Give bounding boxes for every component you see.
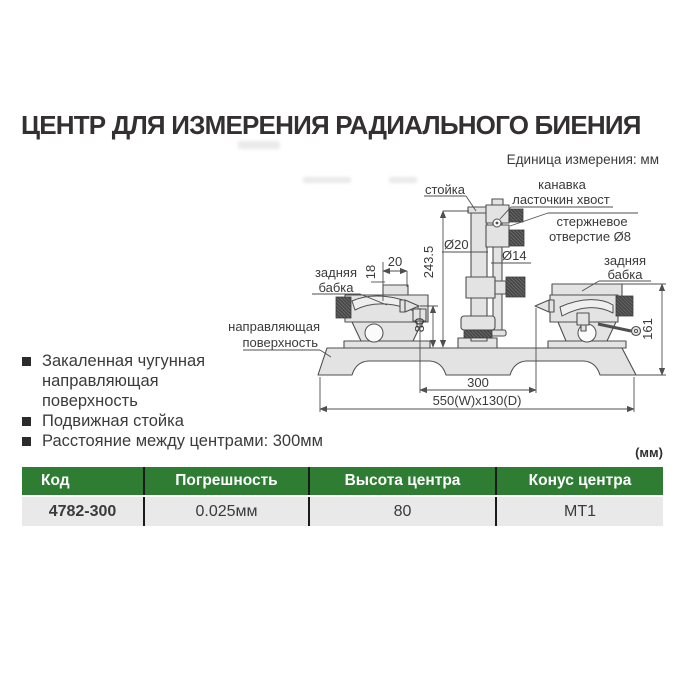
tailstock-left-label-2: бабка bbox=[318, 280, 354, 295]
dim-label: 300 bbox=[467, 375, 489, 390]
measuring-stand bbox=[461, 199, 525, 341]
table-header-row: Код Погрешность Высота центра Конус цент… bbox=[22, 467, 663, 497]
feature-line: Подвижная стойка bbox=[42, 411, 184, 431]
dim-label: 80 bbox=[412, 318, 427, 332]
knurled-knob-icon bbox=[509, 230, 524, 246]
knurled-knob-icon bbox=[616, 296, 633, 316]
callout-rod-hole: стержневое отверстие Ø8 bbox=[510, 213, 638, 244]
cell-center-height: 80 bbox=[308, 497, 495, 526]
guide-label-1: направляющая bbox=[228, 319, 320, 334]
cell-code: 4782-300 bbox=[22, 497, 143, 526]
dim-label: 243.5 bbox=[421, 246, 436, 279]
tailstock-right-label-2: бабка bbox=[607, 267, 643, 282]
center-cone-right bbox=[535, 300, 549, 312]
stand-label: стойка bbox=[425, 182, 466, 197]
spec-table: Код Погрешность Высота центра Конус цент… bbox=[22, 467, 663, 526]
feature-line: поверхность bbox=[42, 391, 205, 411]
bullet-square-icon bbox=[22, 417, 31, 426]
knurled-knob-icon bbox=[509, 209, 523, 222]
column-header-code: Код bbox=[22, 467, 143, 495]
cell-center-taper: МТ1 bbox=[495, 497, 663, 526]
feature-list: Закаленная чугунная направляющая поверхн… bbox=[22, 351, 352, 451]
bullet-square-icon bbox=[22, 357, 31, 366]
feature-line: направляющая bbox=[42, 371, 205, 391]
knurled-knob-icon bbox=[336, 297, 351, 318]
guide-label-2: поверхность bbox=[243, 335, 319, 350]
tailstock-left-label-1: задняя bbox=[315, 265, 357, 280]
table-row: 4782-300 0.025мм 80 МТ1 bbox=[22, 497, 663, 526]
dim-label: Ø20 bbox=[444, 237, 469, 252]
column-header-center-height: Высота центра bbox=[308, 467, 495, 495]
dim-label: 18 bbox=[363, 265, 378, 279]
rod-hole-label-2: отверстие Ø8 bbox=[549, 229, 631, 244]
bullet-square-icon bbox=[22, 437, 31, 446]
list-item: Закаленная чугунная направляющая поверхн… bbox=[22, 351, 352, 411]
column-header-accuracy: Погрешность bbox=[143, 467, 308, 495]
page-title: ЦЕНТР ДЛЯ ИЗМЕРЕНИЯ РАДИАЛЬНОГО БИЕНИЯ bbox=[21, 110, 691, 141]
knurled-knob-icon bbox=[506, 277, 525, 297]
dim-label: 20 bbox=[388, 254, 402, 269]
dim-label: 550(W)x130(D) bbox=[433, 393, 522, 408]
list-item: Расстояние между центрами: 300мм bbox=[22, 431, 352, 451]
column-header-center-taper: Конус центра bbox=[495, 467, 663, 495]
list-item: Подвижная стойка bbox=[22, 411, 352, 431]
groove-label-1: канавка bbox=[538, 177, 586, 192]
dim-label: 161 bbox=[640, 318, 655, 340]
column-clamp bbox=[466, 277, 495, 298]
feature-line: Закаленная чугунная bbox=[42, 351, 205, 371]
tailstock-right bbox=[535, 284, 641, 348]
groove-label-2: ласточкин хвост bbox=[512, 192, 610, 207]
cell-accuracy: 0.025мм bbox=[143, 497, 308, 526]
feature-line: Расстояние между центрами: 300мм bbox=[42, 431, 323, 451]
table-unit-label: (мм) bbox=[635, 445, 663, 460]
tailstock-right-label-1: задняя bbox=[604, 253, 646, 268]
dim-label: Ø14 bbox=[502, 248, 527, 263]
rod-hole-label-1: стержневое bbox=[556, 214, 627, 229]
